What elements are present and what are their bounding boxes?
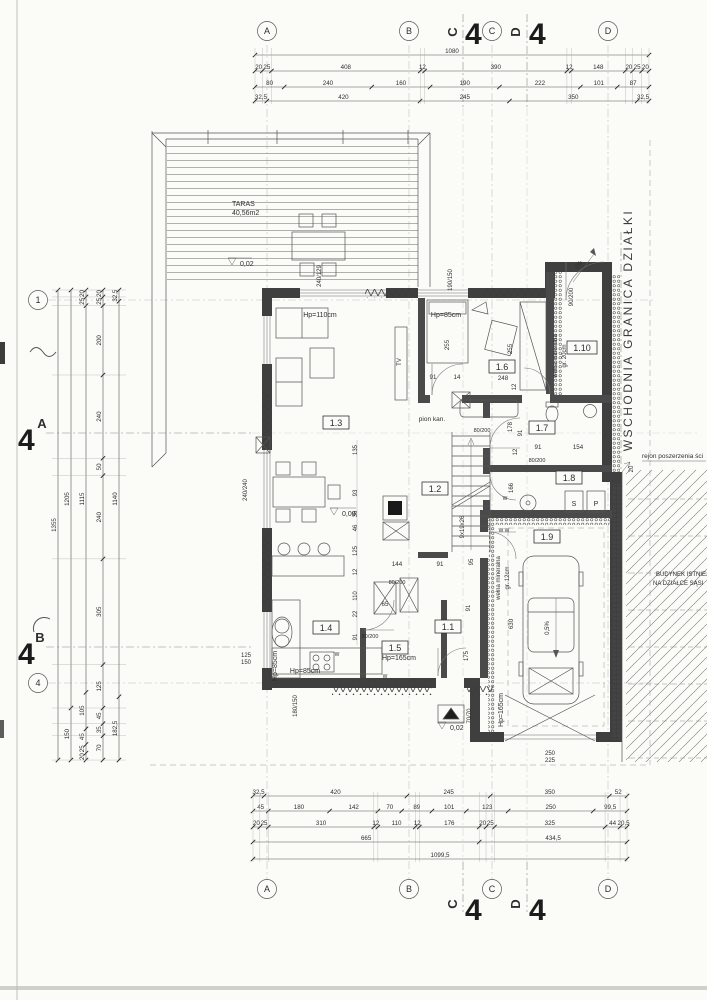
grid-4-left: 4 bbox=[35, 678, 40, 688]
dim-175: 175 bbox=[464, 650, 470, 661]
dim-value: 142 bbox=[349, 804, 360, 811]
dim-value: 20 bbox=[479, 820, 486, 827]
hp110-label: Hp=110cm bbox=[303, 312, 337, 319]
section-b-left: B bbox=[35, 630, 44, 645]
hp165-garage: Hp=165cm bbox=[498, 693, 505, 727]
win-150: 150 bbox=[241, 660, 252, 666]
dim-value: 70 bbox=[386, 804, 393, 811]
dim-value: 25 bbox=[79, 745, 86, 752]
dim-value: 125 bbox=[96, 681, 103, 692]
dim-91-a: 91 bbox=[430, 374, 437, 381]
dim-value: 25 bbox=[96, 297, 103, 304]
room-label-1-4: 1.4 bbox=[320, 623, 333, 633]
door-80-200-d: 80/200 bbox=[362, 634, 379, 640]
dim-value: 89 bbox=[413, 804, 420, 811]
dim-value: 305 bbox=[96, 606, 103, 617]
dim-value: 390 bbox=[491, 64, 502, 71]
dim-12-b: 12 bbox=[513, 448, 519, 455]
dim-91-c: 91 bbox=[535, 444, 542, 451]
dim-value: 50 bbox=[96, 463, 103, 470]
dim-value: 80 bbox=[266, 80, 273, 87]
dim-value: 12 bbox=[566, 64, 573, 71]
win-190-150: 190/150 bbox=[448, 269, 454, 291]
section-sheet-c-top: 4 bbox=[465, 18, 482, 51]
section-sheet-d-bottom: 4 bbox=[529, 894, 546, 927]
door-90-200: 90/200 bbox=[569, 287, 575, 306]
section-c-bottom: C bbox=[445, 899, 460, 909]
dim-value: 1080 bbox=[445, 48, 459, 55]
dim-value: 45 bbox=[79, 733, 86, 740]
dim-91-d: 91 bbox=[437, 561, 444, 568]
dim-value: 35 bbox=[96, 726, 103, 733]
dim-95: 95 bbox=[469, 558, 475, 565]
dim-value: 52 bbox=[615, 789, 622, 796]
grid-d-top: D bbox=[605, 26, 612, 36]
dim-12-c: 12 bbox=[353, 568, 359, 575]
tv-label: TV bbox=[397, 358, 403, 366]
washer-letter: P bbox=[594, 501, 599, 508]
dim-value: 190 bbox=[460, 80, 471, 87]
dim-value: 101 bbox=[594, 80, 605, 87]
door-80-200-c: 80/200 bbox=[389, 580, 406, 586]
dim-value: 325 bbox=[545, 820, 556, 827]
dim-value: 1140 bbox=[112, 492, 119, 506]
room-label-1-9: 1.9 bbox=[541, 532, 554, 542]
widening-label: rejon poszerzenia ści bbox=[642, 453, 703, 460]
site-features bbox=[622, 461, 707, 762]
dim-value: 123 bbox=[482, 804, 493, 811]
dim-value: 148 bbox=[593, 64, 604, 71]
dim-255-a: 255 bbox=[444, 339, 451, 350]
section-d-bottom: D bbox=[508, 899, 523, 908]
room-label-1-7: 1.7 bbox=[536, 423, 549, 433]
welna12-line1: wełna mineralna bbox=[496, 555, 502, 600]
neighbor-line2: NA DZIAŁCE SĄSI bbox=[653, 581, 704, 587]
dim-value: 310 bbox=[316, 820, 327, 827]
room-label-1-2: 1.2 bbox=[429, 484, 442, 494]
dim-value: 240 bbox=[323, 80, 334, 87]
w-mark-1: W bbox=[503, 496, 508, 502]
dim-91-f: 91 bbox=[353, 633, 359, 640]
win-180-150: 180/150 bbox=[293, 695, 299, 717]
section-c-top: C bbox=[445, 27, 460, 37]
dim-12-a: 12 bbox=[512, 383, 518, 390]
dim-value: 32,5 bbox=[637, 94, 650, 101]
dim-value: 1355 bbox=[51, 518, 58, 532]
dim-value: 20 bbox=[79, 753, 86, 760]
dim-125: 125 bbox=[353, 545, 359, 556]
section-sheet-a-left: 4 bbox=[18, 424, 35, 457]
dim-value: 45 bbox=[257, 804, 264, 811]
grid-d-bottom: D bbox=[605, 884, 612, 894]
dim-value: 25 bbox=[634, 64, 641, 71]
east-boundary-label: WSCHODNIA GRANICA DZIAŁKI bbox=[621, 209, 635, 452]
dim-value: 245 bbox=[443, 789, 454, 796]
garage-door-250: 250 bbox=[545, 751, 556, 757]
dim-135: 135 bbox=[353, 444, 359, 455]
dim-value: 240 bbox=[96, 411, 103, 422]
dim-91-e: 91 bbox=[466, 604, 472, 611]
ww-mark: W W bbox=[499, 528, 510, 534]
dim-630: 630 bbox=[508, 618, 515, 629]
room-label-1-6: 1.6 bbox=[496, 362, 509, 372]
welna20-line1: wełna mineralna bbox=[553, 333, 559, 378]
grid-a-bottom: A bbox=[264, 884, 270, 894]
terrace-name: TARAS bbox=[232, 201, 255, 208]
section-a-left: A bbox=[37, 416, 47, 431]
win-240-240: 240/240 bbox=[243, 479, 249, 501]
dim-value: 200 bbox=[96, 335, 103, 346]
dim-value: 20 bbox=[253, 820, 260, 827]
dim-value: 420 bbox=[338, 94, 349, 101]
dim-value: 182,5 bbox=[112, 720, 119, 736]
dim-value: 250 bbox=[546, 804, 557, 811]
level-entry: 0,02 bbox=[450, 725, 464, 732]
dim-36: 36 bbox=[353, 510, 359, 517]
dim-value: 101 bbox=[444, 804, 455, 811]
section-d-top: D bbox=[508, 27, 523, 36]
dim-value: 150 bbox=[64, 728, 71, 739]
dim-value: 408 bbox=[341, 64, 352, 71]
grid-b-bottom: B bbox=[406, 884, 412, 894]
dim-value: 99,5 bbox=[604, 804, 617, 811]
dim-value: 665 bbox=[361, 835, 372, 842]
w-mark-2: W bbox=[335, 652, 340, 658]
garage-door-225: 225 bbox=[545, 758, 556, 764]
dim-value: 45 bbox=[96, 712, 103, 719]
dim-144: 144 bbox=[392, 561, 403, 568]
grid-a-top: A bbox=[264, 26, 270, 36]
dim-value: 12 bbox=[419, 64, 426, 71]
dim-value: 240 bbox=[96, 512, 103, 523]
dim-166: 166 bbox=[509, 482, 515, 493]
dim-value: 32,5 bbox=[253, 789, 266, 796]
dim-value: 1205 bbox=[64, 492, 71, 506]
dim-value: 25 bbox=[263, 64, 270, 71]
dim-value: 20 bbox=[255, 64, 262, 71]
terrace-decking bbox=[167, 140, 418, 286]
grid-b-top: B bbox=[406, 26, 412, 36]
section-sheet-c-bottom: 4 bbox=[465, 894, 482, 927]
dim-value: 20 bbox=[625, 64, 632, 71]
welna20-line2: gr. 20cm bbox=[562, 344, 568, 367]
dim-value: 160 bbox=[396, 80, 407, 87]
dim-value: 12 bbox=[414, 820, 421, 827]
dim-value: 20 bbox=[642, 64, 649, 71]
dim-value: 245 bbox=[460, 94, 471, 101]
dim-value: 70 bbox=[96, 744, 103, 751]
garage-slope: 0,5% bbox=[545, 621, 551, 635]
dim-22: 22 bbox=[353, 610, 359, 617]
dim-20-step: 20 bbox=[629, 465, 635, 472]
win-240-129: 240/129 bbox=[317, 265, 323, 287]
dim-value: 32,5 bbox=[112, 289, 119, 302]
section-sheet-b-left: 4 bbox=[18, 638, 35, 671]
dim-value: 176 bbox=[444, 820, 455, 827]
dim-value: 32,5 bbox=[255, 94, 268, 101]
hp165-pantry: Hp=165cm bbox=[382, 655, 416, 662]
door-80-200-a: 80/200 bbox=[529, 458, 546, 464]
dim-value: 1115 bbox=[79, 492, 86, 505]
dim-value: 222 bbox=[535, 80, 546, 87]
dim-value: 434,5 bbox=[545, 835, 561, 842]
dim-value: 20 bbox=[96, 289, 103, 296]
dim-value: 12 bbox=[372, 820, 379, 827]
room-label-1-5: 1.5 bbox=[389, 643, 402, 653]
hp85-bedroom: Hp=85cm bbox=[431, 312, 461, 319]
dim-14: 14 bbox=[454, 374, 461, 381]
floor-plan-scan: 1080 20254081239012148202520 80240160190… bbox=[0, 0, 707, 1000]
dim-70-70: 70/70 bbox=[467, 708, 473, 724]
stairs-spec: 9x19x26 bbox=[460, 515, 466, 538]
welna12-line2: gr. 12cm bbox=[505, 566, 511, 589]
dim-value: 105 bbox=[79, 705, 86, 716]
grid-1-left: 1 bbox=[35, 295, 40, 305]
pion-kan-label: pion kan. bbox=[419, 416, 446, 423]
dim-178: 178 bbox=[508, 421, 514, 432]
dim-value: 25 bbox=[261, 820, 268, 827]
dim-65: 65 bbox=[382, 601, 389, 608]
grid-c-bottom: C bbox=[489, 884, 496, 894]
dryer-letter: S bbox=[572, 501, 577, 508]
terrace-level: 0,02 bbox=[240, 261, 254, 268]
dim-value: 350 bbox=[545, 789, 556, 796]
dim-value: 25 bbox=[487, 820, 494, 827]
dim-value: 20,5 bbox=[618, 820, 631, 827]
dim-value: 44 bbox=[609, 820, 616, 827]
dim-value: 350 bbox=[568, 94, 579, 101]
dim-value: 1099,5 bbox=[431, 852, 450, 859]
door-80-200-b: 80/200 bbox=[474, 428, 491, 434]
room-label-1-10: 1.10 bbox=[573, 343, 591, 353]
neighbor-line1: BUDYNEK ISTNIEJĄ bbox=[656, 572, 707, 578]
dim-value: 420 bbox=[330, 789, 341, 796]
dim-value: 25 bbox=[79, 297, 86, 304]
dim-248: 248 bbox=[498, 375, 509, 382]
dim-value: 87 bbox=[630, 80, 637, 87]
dim-255-b: 255 bbox=[507, 343, 514, 354]
dim-93: 93 bbox=[353, 489, 359, 496]
floor-plan-svg: 1080 20254081239012148202520 80240160190… bbox=[0, 0, 707, 1000]
dim-value: 20 bbox=[79, 289, 86, 296]
grid-c-top: C bbox=[489, 26, 496, 36]
dim-154: 154 bbox=[573, 444, 584, 451]
win-125: 125 bbox=[241, 653, 252, 659]
section-sheet-d-top: 4 bbox=[529, 18, 546, 51]
hp85-kitchen-rot: Hp=85cm bbox=[272, 651, 279, 681]
w-mark-3: W bbox=[383, 674, 388, 680]
room-label-1-8: 1.8 bbox=[563, 473, 576, 483]
dim-110: 110 bbox=[353, 591, 359, 601]
hp85-kitchen: Hp=85cm bbox=[290, 668, 320, 675]
room-label-1-3: 1.3 bbox=[330, 418, 343, 428]
dim-46: 46 bbox=[353, 524, 359, 531]
dim-91-b: 91 bbox=[518, 429, 524, 436]
room-label-1-1: 1.1 bbox=[442, 622, 455, 632]
dim-value: 180 bbox=[294, 804, 305, 811]
dim-value: 110 bbox=[392, 820, 402, 827]
terrace-area: 40,56m2 bbox=[232, 210, 259, 217]
